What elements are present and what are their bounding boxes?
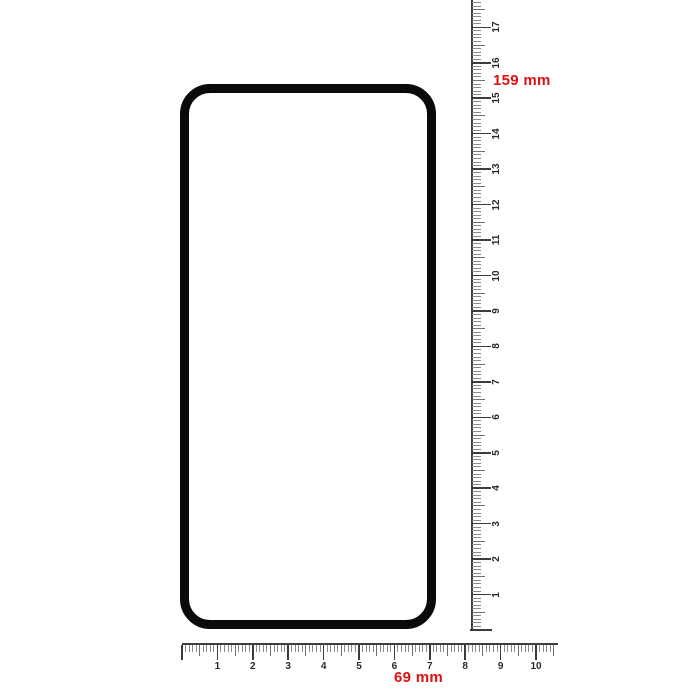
mm-tick (472, 243, 481, 244)
mm-tick (383, 645, 384, 652)
mm-tick (472, 183, 481, 184)
mm-tick (316, 645, 317, 652)
horizontal-ruler-number: 2 (242, 661, 264, 672)
vertical-ruler-number: 3 (487, 515, 505, 533)
cm-tick (429, 645, 431, 660)
mm-tick (274, 645, 275, 652)
mm-tick (507, 645, 508, 652)
mm-tick (472, 601, 481, 602)
vertical-ruler-number: 2 (487, 550, 505, 568)
mm-tick (472, 420, 481, 421)
mm-tick (479, 645, 480, 652)
cm-tick (394, 645, 396, 660)
mm-tick (327, 645, 328, 652)
mm-tick (291, 645, 292, 652)
mm-tick (472, 459, 481, 460)
mm-tick (362, 645, 363, 652)
mm-tick (472, 466, 481, 467)
mm-tick (472, 537, 481, 538)
mm-tick (475, 645, 476, 652)
mm-tick (472, 250, 481, 251)
mm-tick (472, 335, 481, 336)
mm-tick (472, 449, 481, 450)
mm-tick (493, 645, 494, 652)
mm-tick (472, 314, 481, 315)
mm-tick (472, 261, 481, 262)
mm-tick (472, 41, 481, 42)
mm-tick (472, 357, 481, 358)
vertical-ruler-number: 7 (487, 373, 505, 391)
mm-tick (472, 48, 481, 49)
mm-tick (369, 645, 370, 652)
mm-tick (472, 552, 481, 553)
mm-tick (245, 645, 246, 652)
cm-tick (535, 645, 537, 660)
mm-tick (472, 424, 481, 425)
mm-tick (472, 6, 481, 7)
mm-tick (295, 645, 296, 652)
mm-tick (281, 645, 282, 652)
mm-tick (472, 229, 481, 230)
half-cm-tick (472, 364, 485, 365)
mm-tick (472, 587, 481, 588)
mm-tick (472, 165, 481, 166)
half-cm-tick (472, 612, 485, 613)
mm-tick (472, 388, 481, 389)
mm-tick (472, 349, 481, 350)
mm-tick (472, 566, 481, 567)
mm-tick (231, 645, 232, 652)
mm-tick (337, 645, 338, 652)
mm-tick (472, 605, 481, 606)
mm-tick (472, 215, 481, 216)
mm-tick (206, 645, 207, 652)
mm-tick (419, 645, 420, 652)
vertical-ruler-number: 13 (487, 160, 505, 178)
vertical-ruler-number: 4 (487, 479, 505, 497)
cm-tick (500, 645, 502, 660)
mm-tick (472, 520, 481, 521)
mm-tick (472, 385, 481, 386)
mm-tick (472, 534, 481, 535)
mm-tick (436, 645, 437, 652)
screen-protector-outline (180, 84, 436, 629)
mm-tick (472, 378, 481, 379)
mm-tick (472, 438, 481, 439)
mm-tick (309, 645, 310, 652)
mm-tick (472, 442, 481, 443)
mm-tick (472, 495, 481, 496)
half-cm-tick (270, 645, 271, 656)
mm-tick (472, 484, 481, 485)
mm-tick (472, 608, 481, 609)
mm-tick (472, 123, 481, 124)
half-cm-tick (472, 115, 485, 116)
mm-tick (472, 225, 481, 226)
mm-tick (472, 491, 481, 492)
mm-tick (312, 645, 313, 652)
mm-tick (543, 645, 544, 652)
mm-tick (472, 201, 481, 202)
mm-tick (238, 645, 239, 652)
mm-tick (472, 236, 481, 237)
mm-tick (185, 645, 186, 652)
mm-tick (461, 645, 462, 652)
mm-tick (472, 321, 481, 322)
mm-tick (189, 645, 190, 652)
mm-tick (228, 645, 229, 652)
half-cm-tick (472, 45, 485, 46)
mm-tick (472, 264, 481, 265)
cm-tick (472, 629, 491, 631)
cm-tick (323, 645, 325, 660)
half-cm-tick (376, 645, 377, 656)
mm-tick (277, 645, 278, 652)
mm-tick (451, 645, 452, 652)
mm-tick (472, 555, 481, 556)
mm-tick (472, 403, 481, 404)
mm-tick (440, 645, 441, 652)
half-cm-tick (472, 80, 485, 81)
mm-tick (334, 645, 335, 652)
mm-tick (472, 108, 481, 109)
horizontal-ruler-number: 8 (454, 661, 476, 672)
mm-tick (224, 645, 225, 652)
vertical-ruler-number: 16 (487, 54, 505, 72)
mm-tick (472, 190, 481, 191)
mm-tick (405, 645, 406, 652)
mm-tick (472, 371, 481, 372)
horizontal-ruler-number: 4 (313, 661, 335, 672)
mm-tick (390, 645, 391, 652)
mm-tick (472, 477, 481, 478)
horizontal-ruler-number: 1 (206, 661, 228, 672)
vertical-ruler-number: 9 (487, 302, 505, 320)
half-cm-tick (199, 645, 200, 656)
mm-tick (472, 119, 481, 120)
half-cm-tick (472, 399, 485, 400)
mm-tick (472, 179, 481, 180)
mm-tick (472, 431, 481, 432)
mm-tick (472, 140, 481, 141)
mm-tick (256, 645, 257, 652)
mm-tick (472, 176, 481, 177)
mm-tick (472, 69, 481, 70)
mm-tick (192, 645, 193, 652)
horizontal-ruler-number: 10 (525, 661, 547, 672)
mm-tick (472, 562, 481, 563)
mm-tick (472, 271, 481, 272)
product-diagram: 1234567891011121314151617 12345678910 15… (0, 0, 700, 700)
mm-tick (472, 622, 481, 623)
mm-tick (373, 645, 374, 652)
mm-tick (302, 645, 303, 652)
mm-tick (472, 254, 481, 255)
half-cm-tick (472, 293, 485, 294)
mm-tick (525, 645, 526, 652)
mm-tick (472, 583, 481, 584)
mm-tick (511, 645, 512, 652)
mm-tick (366, 645, 367, 652)
mm-tick (472, 580, 481, 581)
mm-tick (433, 645, 434, 652)
mm-tick (472, 410, 481, 411)
mm-tick (472, 569, 481, 570)
mm-tick (330, 645, 331, 652)
half-cm-tick (472, 470, 485, 471)
mm-tick (472, 325, 481, 326)
cm-tick (181, 645, 183, 660)
half-cm-tick (472, 541, 485, 542)
vertical-ruler-number: 10 (487, 267, 505, 285)
mm-tick (263, 645, 264, 652)
mm-tick (472, 626, 481, 627)
mm-tick (472, 66, 481, 67)
mm-tick (472, 619, 481, 620)
mm-tick (472, 396, 481, 397)
horizontal-ruler: 12345678910 (182, 643, 558, 679)
mm-tick (472, 154, 481, 155)
vertical-ruler-number: 6 (487, 408, 505, 426)
half-cm-tick (518, 645, 519, 656)
mm-tick (472, 13, 481, 14)
mm-tick (472, 197, 481, 198)
half-cm-tick (235, 645, 236, 656)
mm-tick (497, 645, 498, 652)
mm-tick (472, 137, 481, 138)
mm-tick (472, 193, 481, 194)
mm-tick (387, 645, 388, 652)
cm-tick (217, 645, 219, 660)
mm-tick (472, 101, 481, 102)
mm-tick (472, 296, 481, 297)
mm-tick (472, 645, 473, 652)
mm-tick (472, 73, 481, 74)
mm-tick (472, 598, 481, 599)
half-cm-tick (472, 222, 485, 223)
mm-tick (472, 20, 481, 21)
mm-tick (472, 342, 481, 343)
mm-tick (472, 516, 481, 517)
mm-tick (472, 162, 481, 163)
mm-tick (344, 645, 345, 652)
mm-tick (472, 87, 481, 88)
horizontal-ruler-number: 9 (490, 661, 512, 672)
half-cm-tick (472, 9, 485, 10)
mm-tick (472, 76, 481, 77)
cm-tick (358, 645, 360, 660)
mm-tick (472, 84, 481, 85)
horizontal-ruler-number: 5 (348, 661, 370, 672)
mm-tick (472, 374, 481, 375)
mm-tick (348, 645, 349, 652)
mm-tick (472, 474, 481, 475)
mm-tick (472, 34, 481, 35)
mm-tick (472, 318, 481, 319)
vertical-ruler-number: 17 (487, 18, 505, 36)
horizontal-ruler-number: 3 (277, 661, 299, 672)
mm-tick (472, 392, 481, 393)
mm-tick (298, 645, 299, 652)
mm-tick (472, 332, 481, 333)
mm-tick (472, 147, 481, 148)
vertical-ruler-number: 1 (487, 586, 505, 604)
mm-tick (472, 279, 481, 280)
mm-tick (472, 247, 481, 248)
mm-tick (486, 645, 487, 652)
mm-tick (259, 645, 260, 652)
mm-tick (210, 645, 211, 652)
mm-tick (458, 645, 459, 652)
mm-tick (521, 645, 522, 652)
mm-tick (472, 289, 481, 290)
mm-tick (472, 172, 481, 173)
mm-tick (514, 645, 515, 652)
mm-tick (266, 645, 267, 652)
mm-tick (472, 300, 481, 301)
vertical-ruler-number: 14 (487, 125, 505, 143)
mm-tick (472, 286, 481, 287)
mm-tick (472, 502, 481, 503)
mm-tick (454, 645, 455, 652)
mm-tick (528, 645, 529, 652)
mm-tick (472, 2, 481, 3)
mm-tick (472, 530, 481, 531)
mm-tick (351, 645, 352, 652)
mm-tick (472, 218, 481, 219)
mm-tick (550, 645, 551, 652)
mm-tick (472, 615, 481, 616)
mm-tick (472, 158, 481, 159)
mm-tick (284, 645, 285, 652)
cm-tick (464, 645, 466, 660)
mm-tick (472, 406, 481, 407)
mm-tick (472, 94, 481, 95)
mm-tick (472, 23, 481, 24)
mm-tick (472, 360, 481, 361)
mm-tick (472, 509, 481, 510)
half-cm-tick (482, 645, 483, 656)
mm-tick (380, 645, 381, 652)
mm-tick (472, 144, 481, 145)
vertical-ruler-number: 15 (487, 89, 505, 107)
mm-tick (472, 52, 481, 53)
mm-tick (472, 445, 481, 446)
mm-tick (472, 91, 481, 92)
mm-tick (489, 645, 490, 652)
mm-tick (472, 59, 481, 60)
mm-tick (220, 645, 221, 652)
mm-tick (472, 413, 481, 414)
mm-tick (468, 645, 469, 652)
mm-tick (472, 573, 481, 574)
half-cm-tick (553, 645, 554, 656)
cm-tick (287, 645, 289, 660)
mm-tick (472, 55, 481, 56)
mm-tick (472, 268, 481, 269)
vertical-ruler: 1234567891011121314151617 (470, 0, 522, 633)
half-cm-tick (447, 645, 448, 656)
mm-tick (472, 513, 481, 514)
vertical-ruler-number: 8 (487, 337, 505, 355)
mm-tick (472, 112, 481, 113)
mm-tick (472, 339, 481, 340)
mm-tick (472, 30, 481, 31)
half-cm-tick (412, 645, 413, 656)
vertical-ruler-number: 5 (487, 444, 505, 462)
mm-tick (472, 527, 481, 528)
mm-tick (443, 645, 444, 652)
mm-tick (203, 645, 204, 652)
cm-tick (252, 645, 254, 660)
mm-tick (213, 645, 214, 652)
mm-tick (355, 645, 356, 652)
mm-tick (472, 456, 481, 457)
mm-tick (472, 353, 481, 354)
mm-tick (408, 645, 409, 652)
mm-tick (472, 16, 481, 17)
mm-tick (397, 645, 398, 652)
mm-tick (472, 498, 481, 499)
half-cm-tick (472, 505, 485, 506)
mm-tick (472, 367, 481, 368)
mm-tick (415, 645, 416, 652)
half-cm-tick (472, 576, 485, 577)
mm-tick (401, 645, 402, 652)
vertical-ruler-number: 11 (487, 231, 505, 249)
mm-tick (472, 427, 481, 428)
half-cm-tick (472, 435, 485, 436)
mm-tick (472, 211, 481, 212)
mm-tick (472, 208, 481, 209)
mm-tick (472, 307, 481, 308)
mm-tick (472, 591, 481, 592)
mm-tick (472, 232, 481, 233)
height-dimension-label: 159 mm (493, 72, 551, 89)
mm-tick (472, 481, 481, 482)
mm-tick (472, 544, 481, 545)
half-cm-tick (472, 257, 485, 258)
mm-tick (422, 645, 423, 652)
half-cm-tick (472, 151, 485, 152)
mm-tick (472, 105, 481, 106)
mm-tick (472, 303, 481, 304)
half-cm-tick (472, 328, 485, 329)
mm-tick (504, 645, 505, 652)
mm-tick (196, 645, 197, 652)
mm-tick (546, 645, 547, 652)
mm-tick (426, 645, 427, 652)
mm-tick (472, 130, 481, 131)
mm-tick (539, 645, 540, 652)
mm-tick (532, 645, 533, 652)
mm-tick (472, 463, 481, 464)
half-cm-tick (305, 645, 306, 656)
vertical-ruler-number: 12 (487, 196, 505, 214)
mm-tick (472, 282, 481, 283)
mm-tick (320, 645, 321, 652)
half-cm-tick (341, 645, 342, 656)
mm-tick (472, 548, 481, 549)
mm-tick (242, 645, 243, 652)
half-cm-tick (472, 186, 485, 187)
width-dimension-label: 69 mm (394, 669, 443, 686)
mm-tick (472, 126, 481, 127)
mm-tick (249, 645, 250, 652)
mm-tick (472, 37, 481, 38)
